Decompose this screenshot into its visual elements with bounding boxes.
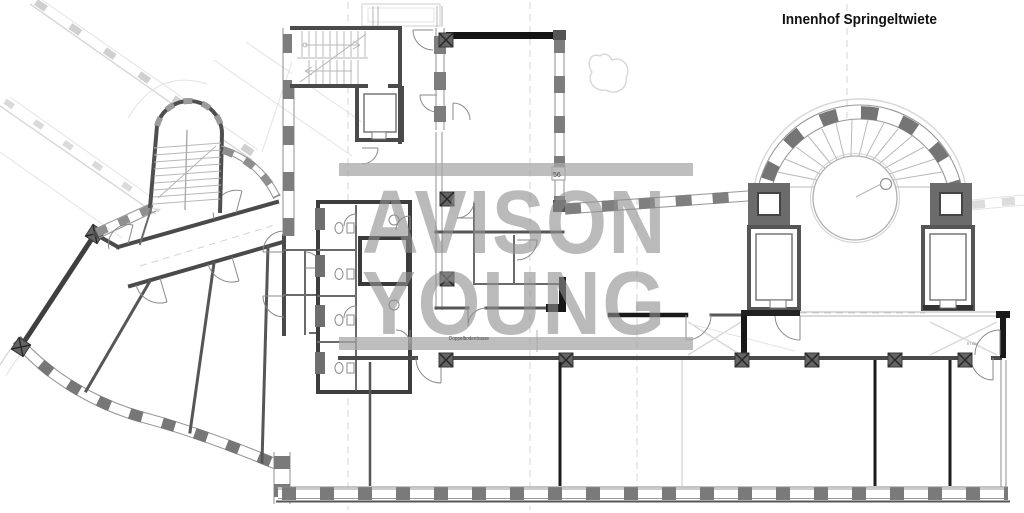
wing-stair-tower <box>150 101 222 213</box>
page-title: Innenhof Springeltwiete <box>782 11 937 28</box>
central-elevator <box>357 88 402 140</box>
floor-plan-drawing: AVISON YOUNG Innenhof Springeltwiete Dop… <box>0 0 1024 513</box>
front-rooms <box>370 360 950 486</box>
elevator-core-right <box>923 183 973 310</box>
curved-facade <box>14 336 284 472</box>
elevator-core-left <box>741 183 800 316</box>
canopy-outline <box>362 4 442 27</box>
revision-cloud-sketch <box>589 54 628 92</box>
door-note-label: In der <box>967 341 979 346</box>
black-lintel-wall <box>446 32 553 39</box>
watermark-line2: YOUNG <box>362 254 667 354</box>
floor-plan-canvas: AVISON YOUNG Innenhof Springeltwiete Dop… <box>0 0 1024 513</box>
left-wing <box>11 101 349 504</box>
corridor-label: Doppelbodentrasse <box>449 336 489 342</box>
sight-lines <box>688 322 997 355</box>
wall-dimension-label: 56 <box>553 172 561 179</box>
watermark: AVISON YOUNG <box>339 163 693 354</box>
stair-newel-pole <box>881 179 892 190</box>
